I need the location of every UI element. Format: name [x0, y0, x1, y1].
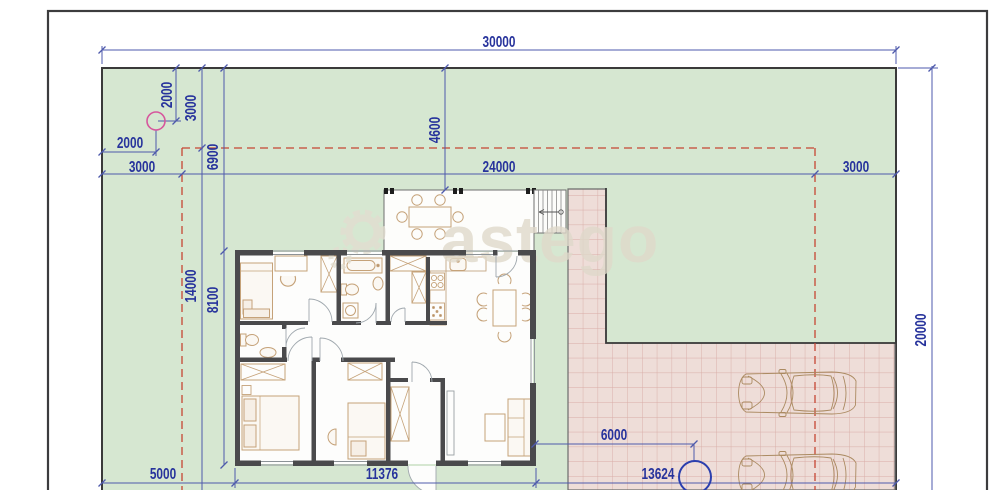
svg-text:30000: 30000: [483, 32, 516, 50]
svg-text:11376: 11376: [366, 464, 398, 482]
svg-text:24000: 24000: [483, 157, 516, 175]
svg-text:6900: 6900: [203, 144, 221, 170]
svg-text:3000: 3000: [181, 95, 199, 121]
svg-text:4600: 4600: [425, 117, 443, 143]
svg-text:3000: 3000: [129, 157, 155, 175]
svg-text:3000: 3000: [843, 157, 869, 175]
svg-text:14000: 14000: [181, 269, 199, 302]
svg-text:2000: 2000: [117, 133, 143, 151]
svg-text:astego: astego: [441, 202, 660, 276]
svg-text:8100: 8100: [203, 287, 221, 313]
svg-text:13624: 13624: [642, 464, 675, 482]
svg-text:6000: 6000: [601, 425, 627, 443]
svg-text:5000: 5000: [150, 464, 176, 482]
svg-text:20000: 20000: [911, 313, 929, 346]
svg-text:2000: 2000: [157, 82, 175, 108]
